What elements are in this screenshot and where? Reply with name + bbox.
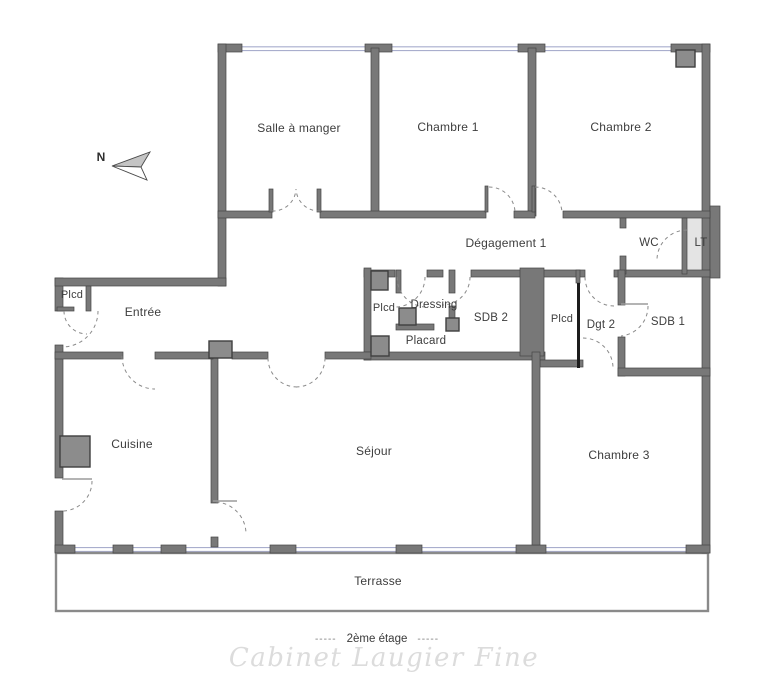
room-label-entree: Entrée bbox=[125, 305, 162, 319]
room-label-chambre-3: Chambre 3 bbox=[588, 448, 649, 462]
room-label-cuisine: Cuisine bbox=[111, 437, 152, 451]
watermark-text: Cabinet Laugier Fine bbox=[229, 643, 539, 673]
sliding-door bbox=[577, 283, 580, 368]
room-label-lt: LT bbox=[695, 237, 708, 249]
room-label-salle-a-manger: Salle à manger bbox=[257, 121, 341, 135]
room-label-sejour: Séjour bbox=[356, 444, 392, 458]
room-label-chambre-2: Chambre 2 bbox=[590, 120, 651, 134]
room-label-dressing: Dressing bbox=[411, 299, 458, 311]
north-arrow-icon bbox=[112, 152, 150, 180]
door-leaves-group bbox=[62, 304, 648, 501]
room-label-plcd-entree: Plcd bbox=[61, 289, 83, 301]
room-label-degagement-1: Dégagement 1 bbox=[465, 236, 546, 250]
room-label-placard: Placard bbox=[406, 335, 446, 347]
floorplan-page: N Salle à manger Chambre 1 Chambre 2 Dég… bbox=[0, 0, 771, 689]
door-arcs-group bbox=[62, 187, 687, 534]
room-label-sdb-1: SDB 1 bbox=[651, 316, 685, 328]
room-label-plcd-hall: Plcd bbox=[551, 313, 573, 325]
room-label-dgt-2: Dgt 2 bbox=[587, 319, 616, 331]
north-label: N bbox=[97, 150, 106, 164]
room-label-chambre-1: Chambre 1 bbox=[417, 120, 478, 134]
room-label-wc: WC bbox=[639, 237, 659, 249]
room-label-plcd-dressing: Plcd bbox=[373, 302, 395, 314]
room-label-terrasse: Terrasse bbox=[354, 574, 402, 588]
room-label-sdb-2: SDB 2 bbox=[474, 312, 508, 324]
